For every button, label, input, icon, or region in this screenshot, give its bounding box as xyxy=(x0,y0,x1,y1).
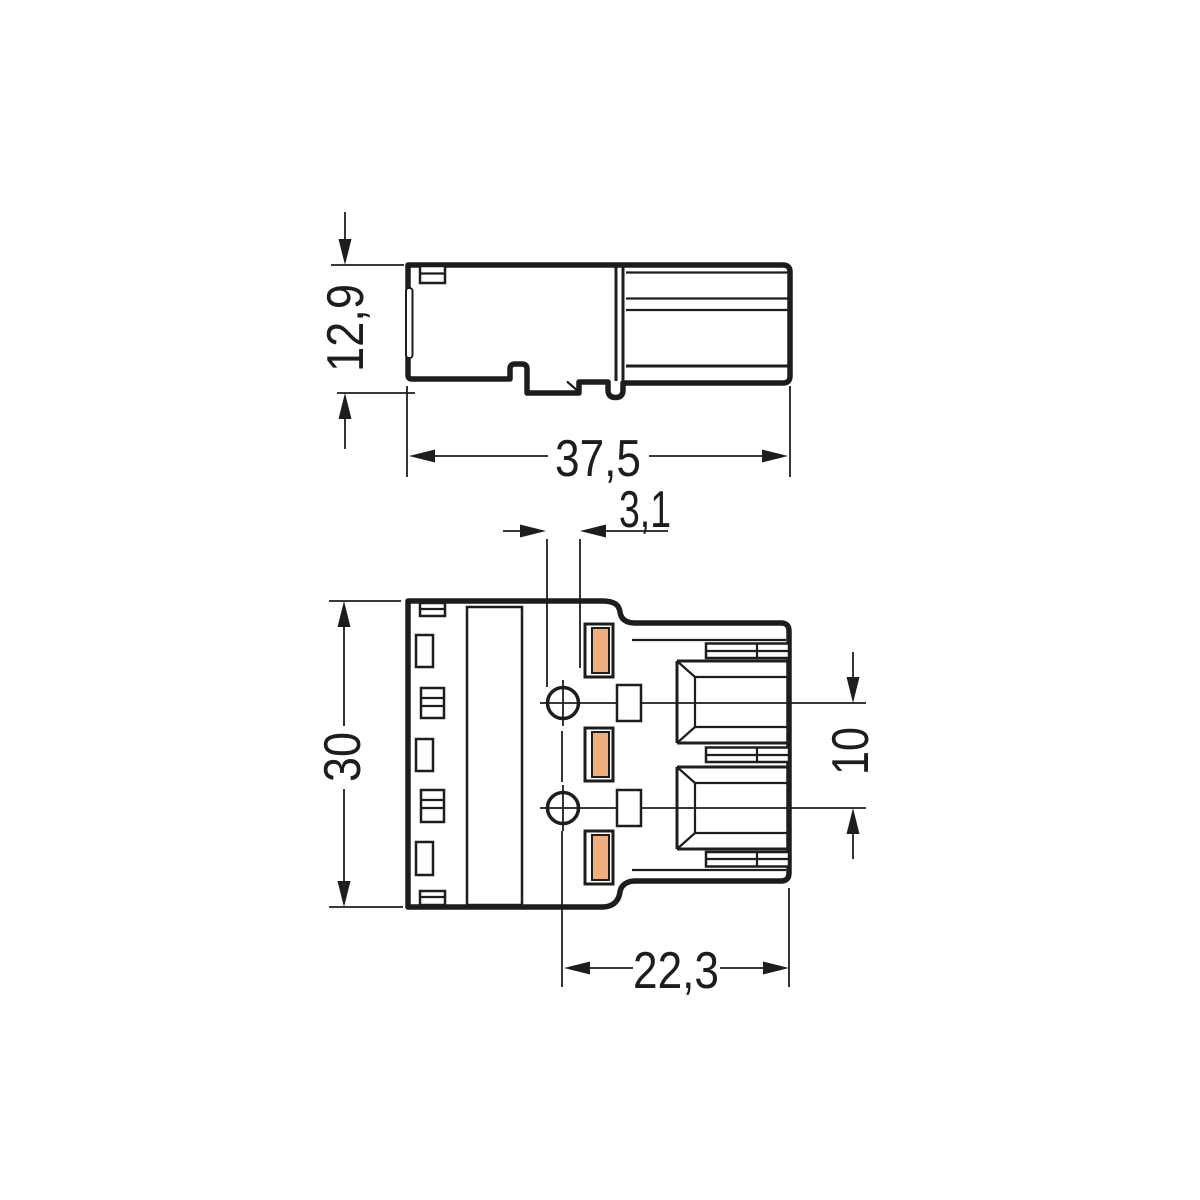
arrowhead-down xyxy=(847,677,860,703)
dim-front-pitch-label: 10 xyxy=(822,727,880,775)
dim-side-width-label: 37,5 xyxy=(555,430,641,488)
dim-front-pitch: 10 xyxy=(822,652,880,859)
contact-1-spring xyxy=(592,628,609,673)
coding-square-2 xyxy=(617,790,641,826)
contact-1 xyxy=(585,624,613,677)
dim-side-height: 12,9 xyxy=(317,212,415,449)
side-view-edge-ridge xyxy=(406,288,413,358)
vent-rect-2 xyxy=(421,688,444,718)
vent-rect-5 xyxy=(416,842,433,875)
arrowhead-up xyxy=(338,601,351,627)
housing-left-features xyxy=(416,603,522,905)
arrowhead-left xyxy=(580,525,606,538)
vent-rect-3 xyxy=(416,739,433,771)
arrowhead-right xyxy=(520,525,546,538)
dim-front-width-label: 22,3 xyxy=(633,942,719,1000)
plug-slot-3 xyxy=(706,852,789,867)
marking-field xyxy=(467,607,522,905)
arrowhead-left xyxy=(409,450,435,463)
arrowhead-right xyxy=(763,962,789,975)
dim-side-width: 37,5 xyxy=(407,386,790,488)
side-view-body-outline xyxy=(408,265,790,398)
vent-rect-4 xyxy=(421,790,444,822)
dim-front-slot-width-label: 3,1 xyxy=(619,481,671,539)
arrowhead-up xyxy=(339,393,352,419)
contact-3 xyxy=(585,831,613,884)
front-view xyxy=(408,601,866,907)
contact-2 xyxy=(585,728,613,781)
dim-front-height: 30 xyxy=(314,601,403,907)
coding-square-1 xyxy=(617,685,641,721)
arrowhead-left xyxy=(564,962,590,975)
arrowhead-down xyxy=(338,881,351,907)
connector-dimension-drawing: 12,9 37,5 xyxy=(0,0,1200,1200)
dim-side-height-label: 12,9 xyxy=(317,284,375,372)
arrowhead-up xyxy=(847,808,860,834)
arrowhead-right xyxy=(762,450,788,463)
side-view xyxy=(406,265,790,398)
contact-3-spring xyxy=(592,835,609,880)
technical-drawing-canvas: 12,9 37,5 xyxy=(0,0,1200,1200)
vent-rect-1 xyxy=(416,635,433,667)
plug-slot-1 xyxy=(706,644,789,659)
arrowhead-down xyxy=(339,239,352,265)
dim-front-height-label: 30 xyxy=(314,732,372,782)
contact-2-spring xyxy=(592,732,609,777)
plug-slot-2 xyxy=(706,748,789,763)
